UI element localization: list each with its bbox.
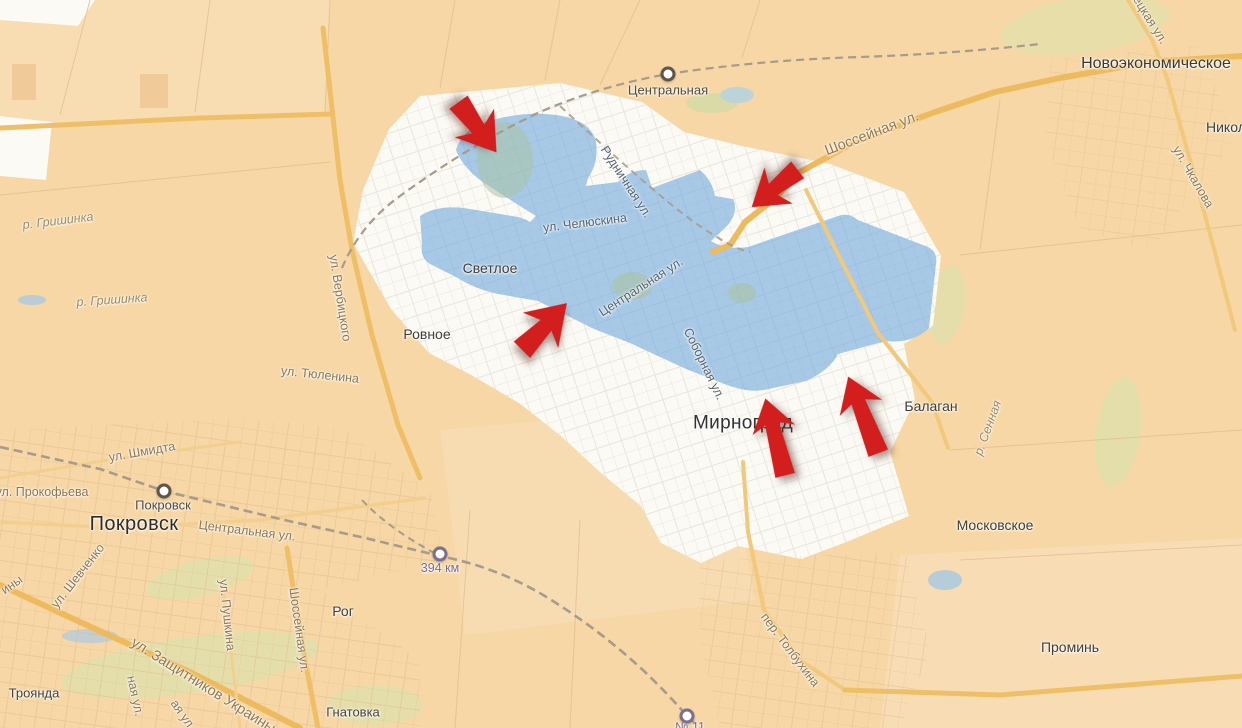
- station-marker-394km: [433, 547, 448, 562]
- station-marker-tsentralnaya: [661, 67, 676, 82]
- station-marker-no11: [680, 709, 695, 724]
- map-canvas[interactable]: Новоэкономическое Никол Центральная Шосс…: [0, 0, 1242, 728]
- station-marker-pokrovsk: [157, 484, 172, 499]
- map-base-layer: [0, 0, 1242, 728]
